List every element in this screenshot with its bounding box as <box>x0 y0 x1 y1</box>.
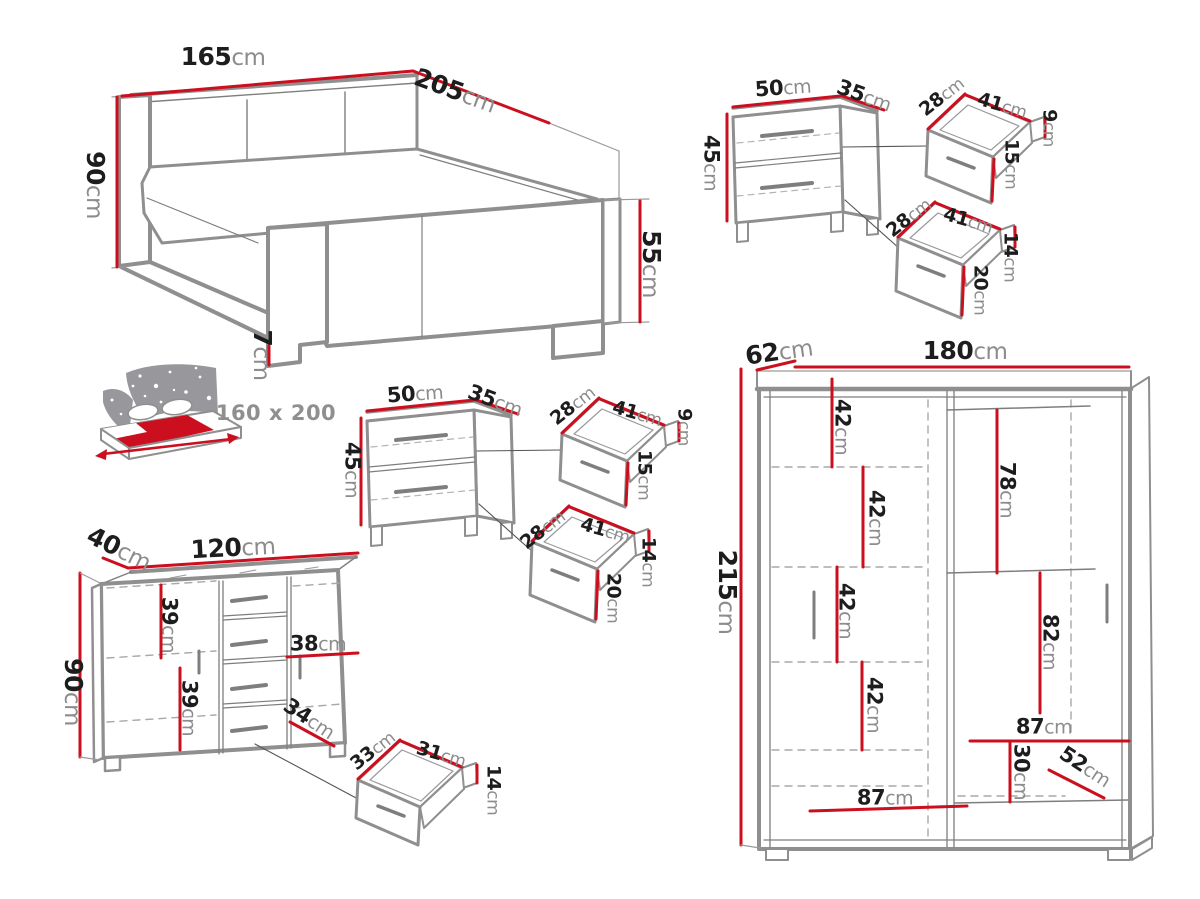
dim-wardrobe-hang-top: 78cm <box>997 462 1018 518</box>
dim-wardrobe-shelf-gap-1: 42cm <box>832 399 853 455</box>
dim-nightstand-b-drawer-top-front-height: 15cm <box>635 450 654 500</box>
dim-wardrobe-right-width: 87cm <box>1016 717 1072 738</box>
bed-drawing <box>112 71 649 366</box>
dim-wardrobe-left-width: 87cm <box>857 788 913 809</box>
dim-wardrobe-height: 215cm <box>714 550 740 635</box>
dim-nightstand-a-width: 50cm <box>754 76 812 101</box>
dim-nightstand-a-drawer-bottom-front-height: 20cm <box>971 265 990 315</box>
dim-wardrobe-bottom-height: 30cm <box>1011 744 1032 800</box>
dim-nightstand-a-drawer-top-front-height: 15cm <box>1002 139 1021 189</box>
dim-nightstand-a-drawer-bottom-back-height: 14cm <box>1001 232 1020 282</box>
dim-nightstand-b-drawer-bottom-back-height: 14cm <box>639 537 658 587</box>
dim-nightstand-b-height: 45cm <box>342 442 363 498</box>
dim-nightstand-b-width: 50cm <box>386 382 444 407</box>
dim-dresser-height: 90cm <box>60 658 86 726</box>
dim-wardrobe-width: 180cm <box>923 338 1008 364</box>
dim-wardrobe-shelf-gap-2: 42cm <box>866 490 887 546</box>
dresser-drawing <box>80 553 358 799</box>
mattress-size-label: 160 x 200 <box>216 401 336 425</box>
dim-bed-leg-height: 7cm <box>249 330 275 381</box>
dim-dresser-inner-width: 38cm <box>290 634 346 655</box>
dim-nightstand-a-height: 45cm <box>701 135 722 191</box>
dim-nightstand-b-drawer-top-back-height: 9cm <box>675 408 694 446</box>
dim-dresser-width: 120cm <box>190 533 276 563</box>
furniture-dimensions-diagram: 165cm 205cm 90cm 55cm 7cm 160 x 200 50cm… <box>0 0 1200 899</box>
dim-bed-footboard-height: 55cm <box>638 230 664 298</box>
dim-nightstand-b-drawer-bottom-front-height: 20cm <box>604 573 623 623</box>
dim-dresser-shelf-gap-top: 39cm <box>159 597 180 653</box>
dim-wardrobe-shelf-gap-3: 42cm <box>836 583 857 639</box>
dim-nightstand-a-drawer-top-back-height: 9cm <box>1040 109 1059 147</box>
dim-wardrobe-shelf-gap-4: 42cm <box>864 677 885 733</box>
dim-bed-height: 90cm <box>82 151 108 219</box>
dim-dresser-shelf-gap-bottom: 39cm <box>179 680 200 736</box>
dim-dresser-drawer-height: 14cm <box>484 765 503 815</box>
dim-wardrobe-hang-bottom: 82cm <box>1040 614 1061 670</box>
dim-bed-width: 165cm <box>181 44 266 70</box>
